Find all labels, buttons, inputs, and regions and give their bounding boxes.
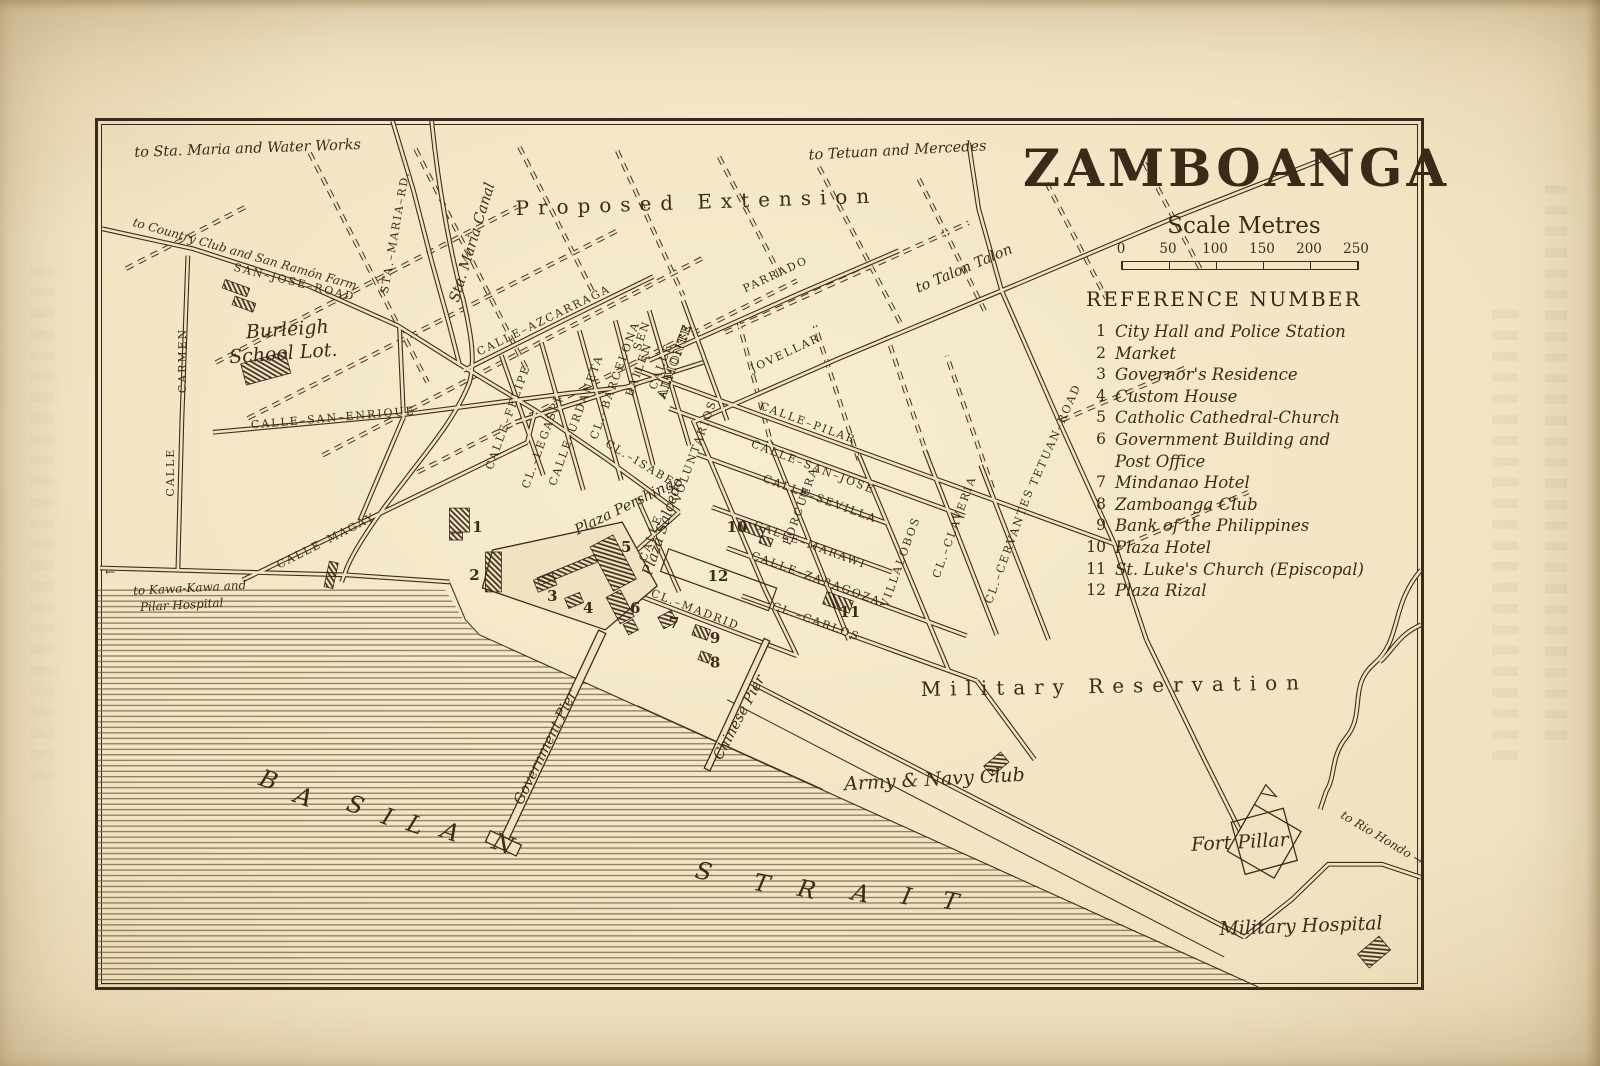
reference-number: 9 [1082,515,1106,537]
reference-name: Custom House [1115,386,1237,408]
map-label: School Lot. [228,339,338,368]
map-frame: SAN–JOSE–ROADCALLE–AZCARRAGACALLE–SAN–EN… [95,118,1424,990]
reference-name: City Hall and Police Station [1115,321,1346,343]
map-label: CL.–CLAVERIA [930,474,979,580]
reference-number: 11 [1082,559,1106,581]
map-label: Military Hospital [1218,912,1383,940]
reference-name: Governor's Residence [1115,364,1298,386]
reference-item: 11St. Luke's Church (Episcopal) [1082,559,1412,581]
map-label: to Sta. Maria and Water Works [134,137,361,161]
reference-number: 6 [1082,429,1106,451]
reference-name: St. Luke's Church (Episcopal) [1115,559,1364,581]
reference-number: 3 [1082,364,1106,386]
scale-tick-label: 0 [1117,241,1126,257]
reference-number: 2 [1082,343,1106,365]
reference-name: Zamboanga Club [1115,494,1258,516]
scanned-paper: SAN–JOSE–ROADCALLE–AZCARRAGACALLE–SAN–EN… [0,0,1600,1066]
scale-bar-rule [1121,261,1359,270]
reference-marker-8: 8 [710,654,720,672]
reference-marker-6: 6 [630,599,640,617]
reference-item: 7Mindanao Hotel [1082,472,1412,494]
reference-item: 12Plaza Rizal [1082,580,1412,602]
scale-tick-label: 250 [1343,241,1369,257]
bleedthrough-text [1492,300,1518,760]
reference-marker-1: 1 [472,518,482,536]
map-label: STA.–MARIA–RD. [378,170,412,295]
bleedthrough-text [30,260,54,780]
reference-item: 10Plaza Hotel [1082,537,1412,559]
reference-number: 10 [1082,537,1106,559]
reference-list: 1City Hall and Police Station2Market3Gov… [1082,321,1412,602]
reference-name: Bank of the Philippines [1115,515,1309,537]
scale-tick [1310,262,1311,269]
map-label: Sta. Maria Canal [447,181,499,305]
map-label: ← [105,565,115,579]
scale-tick [1169,262,1170,269]
reference-marker-4: 4 [583,599,593,617]
map-label: CARMEN [176,328,189,393]
reference-item: 4Custom House [1082,386,1412,408]
scale-tick-label: 50 [1159,241,1176,257]
reference-marker-10: 10 [727,518,748,536]
map-title: ZAMBOANGA [1023,139,1425,199]
reference-marker-11: 11 [839,603,860,621]
scale-tick [1263,262,1264,269]
reference-name: Catholic Cathedral-Church [1115,407,1340,429]
map-label: CALLE–SAN–ENRIQUE [250,404,416,431]
reference-name: Market [1115,343,1176,365]
reference-item: 9Bank of the Philippines [1082,515,1412,537]
map-label: Proposed Extension [515,183,878,220]
reference-item: 2Market [1082,343,1412,365]
reference-marker-5: 5 [621,538,631,556]
reference-heading: REFERENCE NUMBER [1086,287,1362,311]
reference-marker-2: 2 [469,566,479,584]
scale-tick-label: 200 [1296,241,1322,257]
scale-tick [1357,262,1358,269]
map-label: to Tetuan and Mercedes [808,138,987,163]
reference-marker-12: 12 [708,567,729,585]
map-label: to Country Club and San Ramón Farm [131,215,358,292]
reference-name: Plaza Rizal [1115,580,1207,602]
reference-marker-3: 3 [547,587,557,605]
reference-name: Mindanao Hotel [1115,472,1250,494]
reference-number: 1 [1082,321,1106,343]
map-label: Military Reservation [921,670,1309,701]
map-label: to Rio Hondo → [1338,808,1421,868]
scale-tick-label: 100 [1202,241,1228,257]
reference-item: 3Governor's Residence [1082,364,1412,386]
reference-number: 4 [1082,386,1106,408]
reference-item: 1City Hall and Police Station [1082,321,1412,343]
reference-item: 6Government Building and Post Office [1082,429,1412,472]
map-label: TETUAN–ROAD [1027,382,1084,488]
scale-tick [1122,262,1123,269]
map-label: CALLE [164,448,177,497]
reference-number: 8 [1082,494,1106,516]
reference-name: Plaza Hotel [1115,537,1211,559]
reference-number: 7 [1082,472,1106,494]
reference-marker-7: 7 [669,614,679,632]
reference-number: 5 [1082,407,1106,429]
reference-item: 8Zamboanga Club [1082,494,1412,516]
scale-tick-label: 150 [1249,241,1275,257]
map-label: Army & Navy Club [842,764,1026,796]
scale-tick [1216,262,1217,269]
reference-item: 5Catholic Cathedral-Church [1082,407,1412,429]
bleedthrough-text [1545,180,1567,740]
reference-name: Government Building and Post Office [1115,429,1330,472]
map-label: PARRADO [741,254,810,296]
reference-number: 12 [1082,580,1106,602]
scale-bar: 050100150200250 [1121,241,1359,277]
scale-label: Scale Metres [1098,213,1390,239]
reference-marker-9: 9 [710,629,720,647]
